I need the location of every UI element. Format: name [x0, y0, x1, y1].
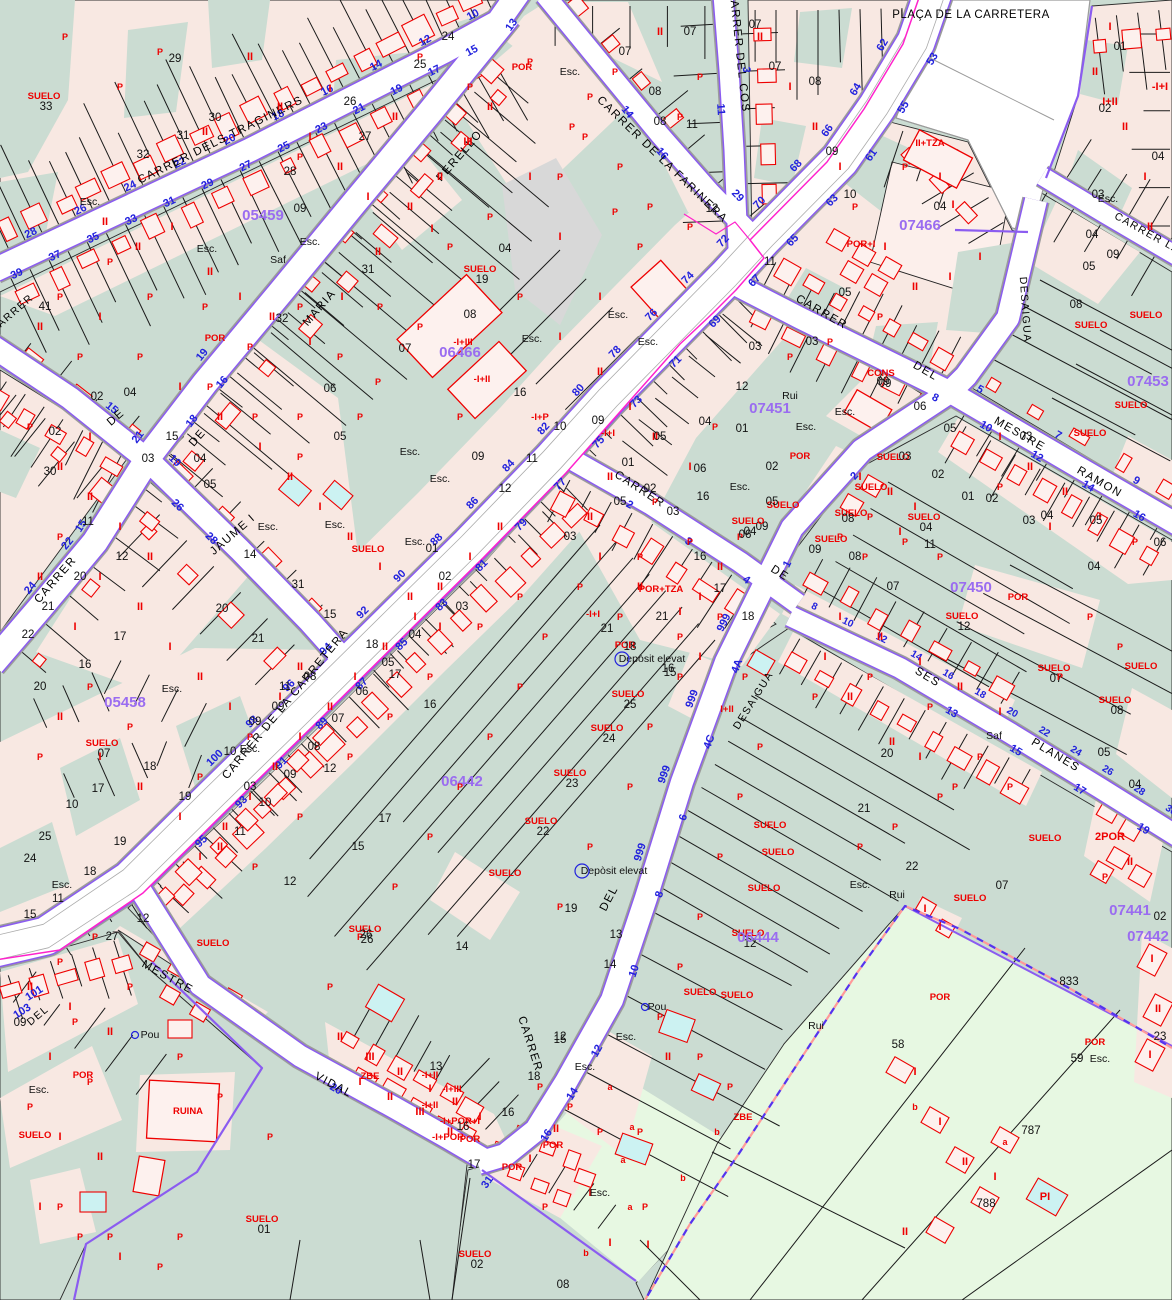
- svg-text:Esc.: Esc.: [796, 421, 816, 433]
- svg-text:I: I: [118, 1251, 121, 1263]
- svg-text:P: P: [902, 537, 908, 547]
- svg-text:18: 18: [528, 1071, 541, 1083]
- svg-text:P: P: [347, 752, 353, 762]
- svg-text:I: I: [688, 461, 691, 473]
- svg-text:P: P: [677, 632, 683, 642]
- svg-text:04: 04: [1088, 561, 1101, 573]
- svg-text:22: 22: [537, 826, 550, 838]
- svg-text:II: II: [1155, 1003, 1161, 1015]
- svg-text:II: II: [392, 111, 398, 123]
- svg-text:II: II: [137, 781, 143, 793]
- svg-text:15: 15: [352, 841, 365, 853]
- svg-text:16: 16: [697, 491, 710, 503]
- svg-text:II: II: [597, 366, 603, 378]
- svg-text:I: I: [978, 251, 981, 263]
- svg-text:04: 04: [920, 522, 933, 534]
- svg-text:12: 12: [137, 913, 150, 925]
- svg-text:P: P: [742, 672, 748, 682]
- svg-text:P: P: [617, 612, 623, 622]
- svg-text:P: P: [677, 112, 683, 122]
- svg-text:04: 04: [499, 243, 512, 255]
- svg-text:12: 12: [736, 381, 749, 393]
- svg-text:01: 01: [426, 543, 439, 555]
- svg-text:P: P: [757, 742, 763, 752]
- svg-text:POR: POR: [790, 451, 811, 462]
- svg-text:P: P: [727, 1082, 733, 1092]
- svg-text:16: 16: [79, 659, 92, 671]
- svg-text:11: 11: [714, 103, 727, 115]
- svg-text:P: P: [567, 1102, 573, 1112]
- svg-text:Esc.: Esc.: [258, 521, 278, 533]
- svg-text:II: II: [147, 551, 153, 563]
- svg-text:II: II: [497, 521, 503, 533]
- svg-text:02: 02: [1154, 911, 1167, 923]
- svg-text:05: 05: [1098, 747, 1111, 759]
- svg-text:P: P: [902, 162, 908, 172]
- svg-text:-I+II: -I+II: [474, 374, 491, 385]
- svg-text:02: 02: [49, 426, 62, 438]
- svg-text:04: 04: [934, 201, 947, 213]
- svg-text:P: P: [647, 202, 653, 212]
- svg-text:P: P: [387, 712, 393, 722]
- svg-text:P: P: [937, 792, 943, 802]
- svg-text:P: P: [557, 902, 563, 912]
- svg-text:12: 12: [706, 203, 719, 215]
- svg-text:14: 14: [244, 549, 257, 561]
- svg-text:I: I: [838, 161, 841, 173]
- svg-text:I: I: [1148, 1049, 1151, 1061]
- svg-text:P: P: [952, 782, 958, 792]
- svg-text:06: 06: [324, 383, 337, 395]
- svg-text:08: 08: [649, 86, 662, 98]
- svg-text:I: I: [1108, 21, 1111, 33]
- svg-text:II: II: [202, 126, 208, 138]
- svg-text:II: II: [37, 321, 43, 333]
- svg-text:SUELO: SUELO: [19, 1130, 52, 1141]
- svg-text:I: I: [430, 223, 433, 235]
- svg-text:II: II: [553, 1123, 559, 1135]
- svg-text:02: 02: [644, 483, 657, 495]
- svg-text:05458: 05458: [104, 694, 146, 711]
- svg-text:15: 15: [166, 431, 179, 443]
- svg-text:II: II: [102, 216, 108, 228]
- svg-text:P: P: [297, 302, 303, 312]
- svg-text:II: II: [297, 661, 303, 673]
- svg-text:Esc.: Esc.: [1098, 193, 1118, 205]
- svg-text:I: I: [98, 751, 101, 763]
- svg-text:II: II: [217, 841, 223, 853]
- svg-text:P: P: [1132, 537, 1138, 547]
- svg-text:01: 01: [622, 457, 635, 469]
- svg-text:18: 18: [84, 866, 97, 878]
- svg-text:P: P: [127, 982, 133, 992]
- svg-text:09: 09: [592, 415, 605, 427]
- svg-text:08: 08: [308, 741, 321, 753]
- svg-text:SUELO: SUELO: [1075, 320, 1108, 331]
- svg-text:Esc.: Esc.: [29, 1084, 49, 1096]
- svg-text:II: II: [137, 601, 143, 613]
- svg-text:P: P: [177, 1232, 183, 1242]
- svg-text:II: II: [962, 1156, 968, 1168]
- svg-text:II: II: [37, 571, 43, 583]
- svg-text:I: I: [118, 521, 121, 533]
- svg-text:Esc.: Esc.: [590, 1187, 610, 1199]
- svg-text:27: 27: [359, 131, 372, 143]
- svg-text:II: II: [887, 486, 893, 498]
- svg-text:II: II: [57, 461, 63, 473]
- svg-text:I: I: [1150, 953, 1153, 965]
- svg-text:II: II: [1092, 66, 1098, 78]
- svg-text:22: 22: [906, 861, 919, 873]
- svg-text:11: 11: [279, 681, 291, 693]
- svg-text:P: P: [647, 722, 653, 732]
- svg-text:II: II: [247, 51, 253, 63]
- svg-text:P: P: [577, 582, 583, 592]
- svg-text:RUINA: RUINA: [173, 1106, 203, 1117]
- svg-text:16: 16: [694, 551, 707, 563]
- svg-text:I: I: [938, 171, 941, 183]
- svg-text:P: P: [62, 32, 68, 42]
- svg-text:Saf: Saf: [986, 730, 1002, 742]
- svg-text:23: 23: [566, 778, 579, 790]
- svg-text:II: II: [222, 821, 228, 833]
- svg-text:10: 10: [259, 797, 272, 809]
- svg-text:P: P: [892, 822, 898, 832]
- svg-text:I: I: [308, 336, 311, 348]
- svg-text:P: P: [27, 1102, 33, 1112]
- svg-text:17: 17: [114, 631, 127, 643]
- svg-text:I: I: [918, 751, 921, 763]
- svg-text:P: P: [27, 422, 33, 432]
- svg-text:I+II: I+II: [720, 704, 733, 715]
- svg-text:II: II: [269, 311, 275, 323]
- svg-text:Esc.: Esc.: [300, 236, 320, 248]
- svg-text:I: I: [993, 1171, 996, 1183]
- svg-text:11: 11: [234, 826, 246, 838]
- svg-text:09: 09: [472, 451, 485, 463]
- svg-text:29: 29: [169, 53, 182, 65]
- svg-text:I: I: [923, 903, 926, 915]
- svg-text:P: P: [617, 162, 623, 172]
- svg-text:05: 05: [1090, 515, 1103, 527]
- svg-text:I: I: [366, 191, 369, 203]
- svg-text:07466: 07466: [899, 217, 941, 234]
- svg-text:P: P: [787, 352, 793, 362]
- svg-text:P: P: [457, 412, 463, 422]
- svg-text:09: 09: [284, 769, 297, 781]
- svg-text:II: II: [437, 171, 443, 183]
- svg-text:31: 31: [177, 130, 190, 142]
- svg-text:01: 01: [962, 491, 975, 503]
- svg-text:P: P: [927, 702, 933, 712]
- svg-text:04: 04: [124, 387, 137, 399]
- svg-text:03: 03: [564, 531, 577, 543]
- svg-text:I: I: [598, 291, 601, 303]
- svg-text:P: P: [612, 67, 618, 77]
- svg-text:41: 41: [39, 301, 52, 313]
- svg-text:05: 05: [766, 496, 779, 508]
- svg-text:POR: POR: [460, 1134, 481, 1145]
- svg-text:02: 02: [986, 493, 999, 505]
- svg-text:Saf: Saf: [270, 254, 286, 266]
- svg-text:ZBE: ZBE: [361, 1071, 380, 1082]
- svg-text:I: I: [913, 1066, 916, 1078]
- svg-text:SUELO: SUELO: [1115, 400, 1148, 411]
- svg-text:II: II: [397, 1066, 403, 1078]
- svg-text:P: P: [717, 612, 723, 622]
- svg-text:P: P: [127, 722, 133, 732]
- svg-text:P: P: [217, 1092, 223, 1102]
- svg-text:Esc.: Esc.: [638, 336, 658, 348]
- svg-text:P: P: [517, 682, 523, 692]
- svg-text:30: 30: [44, 466, 57, 478]
- svg-text:P: P: [297, 152, 303, 162]
- svg-text:-I+I: -I+I: [1152, 81, 1168, 93]
- svg-text:II: II: [327, 701, 333, 713]
- svg-text:Esc.: Esc.: [560, 66, 580, 78]
- svg-text:P: P: [867, 672, 873, 682]
- svg-text:P: P: [517, 292, 523, 302]
- svg-text:b: b: [912, 1102, 918, 1112]
- svg-text:II: II: [1062, 486, 1068, 498]
- svg-text:28: 28: [284, 166, 297, 178]
- svg-text:II: II: [135, 241, 141, 253]
- svg-text:I: I: [413, 611, 416, 623]
- svg-text:P: P: [77, 352, 83, 362]
- svg-text:Pou: Pou: [648, 1001, 667, 1013]
- svg-text:09: 09: [826, 146, 839, 158]
- svg-text:13: 13: [430, 1061, 443, 1073]
- svg-text:P: P: [147, 292, 153, 302]
- svg-text:P: P: [297, 412, 303, 422]
- svg-text:I: I: [858, 471, 861, 483]
- svg-text:P: P: [327, 982, 333, 992]
- svg-text:08: 08: [557, 1279, 570, 1291]
- svg-text:12: 12: [958, 621, 971, 633]
- svg-text:26: 26: [360, 929, 373, 941]
- svg-text:II: II: [387, 1091, 393, 1103]
- svg-text:I: I: [298, 731, 301, 743]
- svg-text:16: 16: [457, 1121, 470, 1133]
- svg-text:II: II: [277, 101, 283, 113]
- svg-text:Esc.: Esc.: [240, 743, 260, 755]
- svg-text:06444: 06444: [737, 929, 779, 946]
- svg-text:I: I: [913, 501, 916, 513]
- svg-text:II: II: [337, 161, 343, 173]
- svg-text:10: 10: [554, 421, 567, 433]
- svg-text:10: 10: [844, 189, 857, 201]
- svg-text:I: I: [698, 651, 701, 663]
- svg-text:II: II: [587, 511, 593, 523]
- svg-text:I: I: [258, 441, 261, 453]
- svg-text:09: 09: [1107, 249, 1120, 261]
- svg-text:04: 04: [699, 416, 712, 428]
- svg-text:15: 15: [24, 909, 37, 921]
- svg-text:P: P: [375, 377, 381, 387]
- svg-text:-I+II: -I+II: [422, 1100, 439, 1111]
- svg-text:P: P: [57, 1202, 63, 1212]
- svg-text:I: I: [1048, 521, 1051, 533]
- svg-text:I: I: [558, 331, 561, 343]
- svg-text:II: II: [407, 201, 413, 213]
- svg-text:05: 05: [1083, 261, 1096, 273]
- svg-text:20: 20: [74, 571, 87, 583]
- svg-text:P: P: [582, 132, 588, 142]
- svg-text:SUELO: SUELO: [754, 820, 787, 831]
- svg-text:II: II: [717, 561, 723, 573]
- svg-text:19: 19: [565, 903, 578, 915]
- svg-text:P: P: [837, 532, 843, 542]
- svg-text:P: P: [537, 1082, 543, 1092]
- svg-text:19: 19: [179, 791, 192, 803]
- svg-text:II: II: [1127, 856, 1133, 868]
- svg-text:I: I: [951, 199, 954, 211]
- svg-text:05: 05: [382, 657, 395, 669]
- svg-text:II: II: [877, 631, 883, 643]
- svg-text:11: 11: [686, 119, 698, 131]
- svg-text:P: P: [517, 592, 523, 602]
- svg-text:-I+P: -I+P: [531, 412, 549, 423]
- svg-text:Esc.: Esc.: [850, 879, 870, 891]
- svg-text:05459: 05459: [242, 207, 284, 224]
- svg-text:II: II: [1122, 121, 1128, 133]
- svg-text:P: P: [1007, 782, 1013, 792]
- svg-text:I: I: [318, 501, 321, 513]
- svg-text:08: 08: [1111, 705, 1124, 717]
- svg-text:12: 12: [116, 551, 129, 563]
- svg-text:I: I: [98, 571, 101, 583]
- svg-text:P: P: [612, 207, 618, 217]
- svg-text:P: P: [252, 412, 258, 422]
- svg-text:I: I: [238, 291, 241, 303]
- svg-text:I: I: [48, 1051, 51, 1063]
- svg-text:P: P: [247, 732, 253, 742]
- svg-text:I: I: [68, 1001, 71, 1013]
- svg-text:II: II: [902, 1226, 908, 1238]
- svg-text:17: 17: [92, 783, 105, 795]
- svg-text:08: 08: [464, 309, 477, 321]
- svg-text:P: P: [57, 957, 63, 967]
- svg-text:07451: 07451: [749, 400, 791, 417]
- svg-text:I: I: [98, 311, 101, 323]
- svg-text:P: P: [637, 1127, 643, 1137]
- svg-text:P: P: [652, 497, 658, 507]
- svg-text:25: 25: [624, 699, 637, 711]
- svg-text:P: P: [737, 792, 743, 802]
- svg-text:I: I: [528, 1153, 531, 1165]
- svg-text:P: P: [247, 342, 253, 352]
- svg-text:05: 05: [839, 287, 852, 299]
- svg-text:P: P: [1087, 612, 1093, 622]
- svg-text:I: I: [788, 81, 791, 93]
- svg-text:31: 31: [362, 264, 375, 276]
- svg-text:POR: POR: [1085, 1037, 1106, 1048]
- svg-text:18: 18: [366, 639, 379, 651]
- svg-text:I: I: [823, 651, 826, 663]
- svg-text:08: 08: [304, 671, 317, 683]
- svg-text:33: 33: [40, 101, 53, 113]
- svg-text:26: 26: [344, 96, 357, 108]
- svg-text:II: II: [607, 471, 613, 483]
- svg-text:II: II: [272, 761, 278, 773]
- svg-text:P: P: [637, 552, 643, 562]
- svg-text:06: 06: [1154, 537, 1167, 549]
- svg-text:I: I: [948, 271, 951, 283]
- svg-text:I: I: [38, 1201, 41, 1213]
- svg-text:P: P: [697, 912, 703, 922]
- svg-text:18: 18: [742, 611, 755, 623]
- svg-text:-I+III: -I+III: [453, 337, 472, 348]
- svg-text:11: 11: [526, 453, 538, 465]
- svg-text:07: 07: [619, 46, 632, 58]
- svg-text:II: II: [347, 531, 353, 543]
- svg-text:P: P: [1117, 642, 1123, 652]
- svg-text:I: I: [1143, 171, 1146, 183]
- svg-text:23: 23: [1154, 1031, 1167, 1043]
- svg-text:15: 15: [554, 1034, 567, 1046]
- svg-text:05: 05: [654, 431, 667, 443]
- svg-text:Pou: Pou: [141, 1029, 160, 1041]
- svg-text:POR: POR: [512, 62, 533, 73]
- svg-text:18: 18: [624, 641, 637, 653]
- svg-text:I: I: [328, 83, 331, 95]
- svg-text:II: II: [337, 1031, 343, 1043]
- svg-text:18: 18: [144, 761, 157, 773]
- svg-text:16: 16: [514, 387, 527, 399]
- svg-text:P: P: [417, 322, 423, 332]
- svg-text:II: II: [107, 1026, 113, 1038]
- svg-text:I: I: [938, 1116, 941, 1128]
- svg-text:Esc.: Esc.: [405, 536, 425, 548]
- svg-text:I: I: [646, 1239, 649, 1251]
- svg-text:SUELO: SUELO: [1130, 310, 1163, 321]
- svg-text:I: I: [698, 591, 701, 603]
- svg-text:Esc.: Esc.: [325, 519, 345, 531]
- svg-text:I: I: [918, 656, 921, 668]
- svg-text:P: P: [677, 962, 683, 972]
- svg-text:SUELO: SUELO: [489, 868, 522, 879]
- svg-text:II: II: [217, 411, 223, 423]
- svg-text:I: I: [340, 291, 343, 303]
- svg-text:Esc.: Esc.: [197, 243, 217, 255]
- svg-text:25: 25: [39, 831, 52, 843]
- svg-text:P: P: [977, 752, 983, 762]
- svg-text:POR: POR: [930, 992, 951, 1003]
- svg-text:2POR: 2POR: [1095, 831, 1125, 843]
- svg-text:I: I: [88, 431, 91, 443]
- svg-text:III: III: [463, 136, 472, 148]
- svg-text:I: I: [438, 621, 441, 633]
- svg-text:05: 05: [334, 431, 347, 443]
- svg-text:II+TZA: II+TZA: [915, 138, 944, 149]
- svg-text:-I+I: -I+I: [586, 609, 600, 620]
- svg-text:20: 20: [881, 748, 894, 760]
- svg-text:Esc.: Esc.: [430, 473, 450, 485]
- svg-text:04: 04: [1152, 151, 1165, 163]
- svg-text:II: II: [757, 31, 763, 43]
- svg-text:I: I: [558, 231, 561, 243]
- svg-text:17: 17: [714, 583, 727, 595]
- svg-text:10: 10: [224, 746, 237, 758]
- svg-text:I: I: [628, 401, 631, 413]
- svg-text:15: 15: [664, 667, 677, 679]
- svg-text:P: P: [637, 242, 643, 252]
- svg-text:19: 19: [114, 836, 127, 848]
- svg-text:POR: POR: [543, 1140, 564, 1151]
- svg-text:II: II: [452, 1096, 458, 1108]
- svg-text:SUELO: SUELO: [954, 893, 987, 904]
- svg-text:P: P: [72, 1017, 78, 1027]
